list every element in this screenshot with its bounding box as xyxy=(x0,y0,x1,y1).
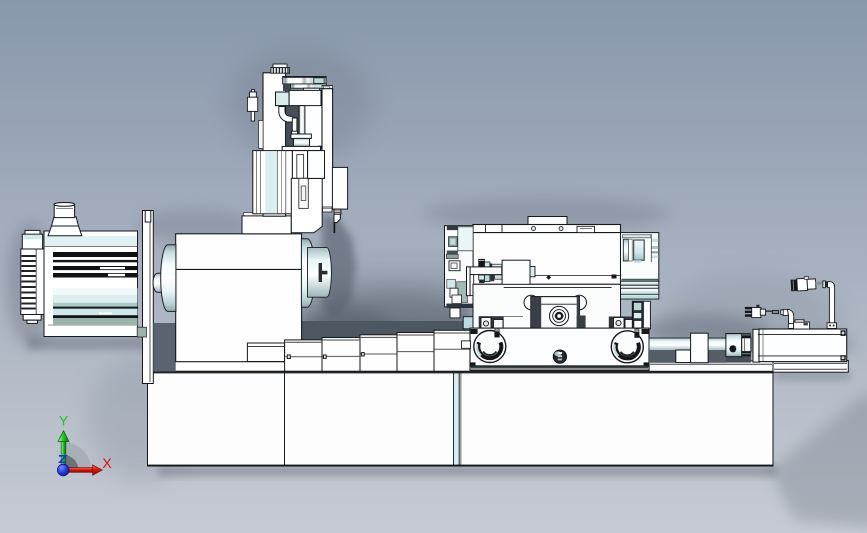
svg-text:X: X xyxy=(102,455,112,471)
svg-text:Y: Y xyxy=(59,413,69,429)
